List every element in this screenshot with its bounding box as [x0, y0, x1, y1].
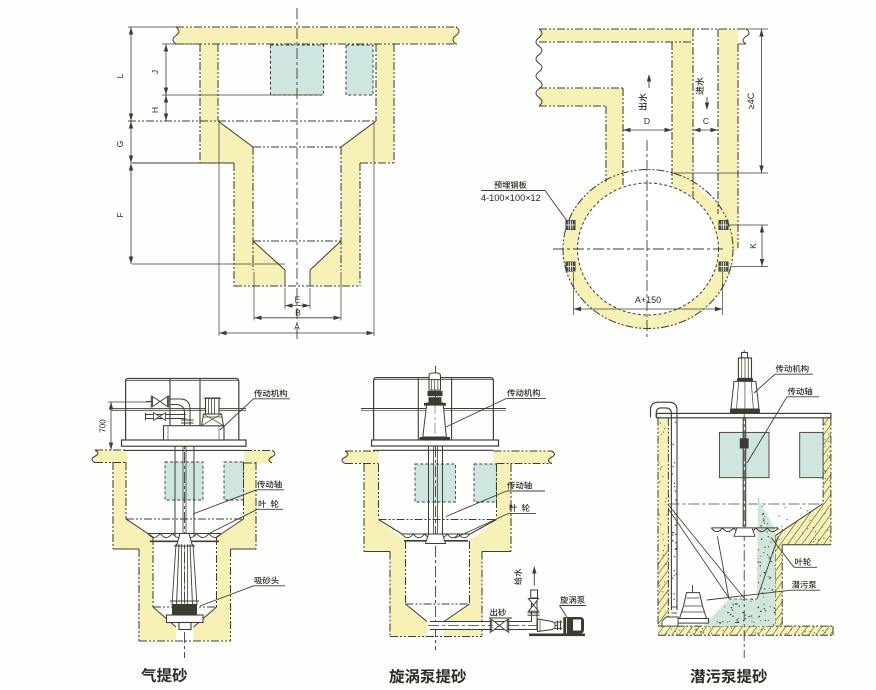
svg-text:F: F — [115, 212, 125, 217]
svg-text:L: L — [115, 73, 125, 78]
svg-text:4-100×100×12: 4-100×100×12 — [481, 193, 541, 203]
svg-text:G: G — [115, 141, 125, 148]
svg-text:K: K — [748, 243, 758, 249]
svg-text:A+150: A+150 — [635, 295, 661, 305]
svg-text:J: J — [150, 70, 160, 74]
svg-text:H: H — [150, 107, 160, 113]
svg-text:D: D — [644, 116, 650, 126]
svg-text:E: E — [295, 295, 301, 305]
svg-text:A: A — [294, 322, 300, 332]
svg-text:B: B — [295, 307, 301, 317]
svg-text:C: C — [703, 116, 709, 126]
svg-text:≥4C: ≥4C — [746, 92, 756, 109]
svg-text:700: 700 — [99, 419, 108, 433]
